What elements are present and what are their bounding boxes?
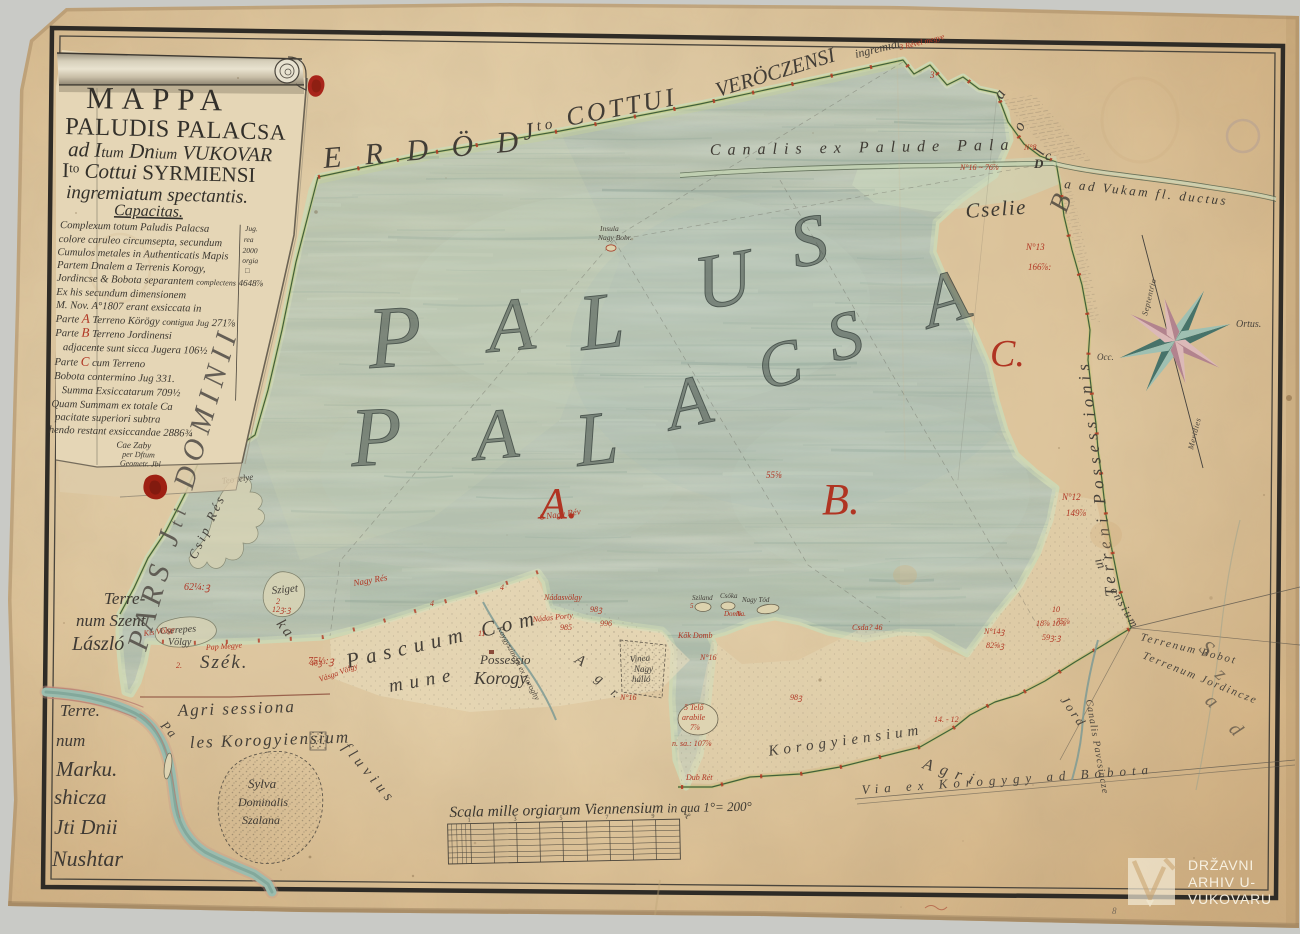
svg-text:82⅝ꝫ: 82⅝ꝫ	[986, 641, 1005, 650]
svg-text:Jug.: Jug.	[245, 224, 258, 233]
svg-text:DRŽAVNI: DRŽAVNI	[1188, 857, 1254, 873]
svg-text:Possessio: Possessio	[479, 652, 531, 667]
svg-text:Na.: Na.	[735, 610, 746, 618]
svg-text:Sylva: Sylva	[248, 776, 277, 791]
svg-text:Marku.: Marku.	[55, 757, 117, 781]
svg-text:4: 4	[430, 599, 434, 608]
svg-text:8: 8	[1112, 906, 1117, 916]
svg-text:Cselie: Cselie	[965, 195, 1028, 223]
svg-text:hálló: hálló	[632, 674, 651, 684]
svg-text:rea: rea	[244, 235, 254, 244]
svg-text:Korogy.: Korogy.	[473, 668, 531, 688]
svg-text:2000: 2000	[242, 246, 257, 255]
svg-text:Insula: Insula	[599, 224, 619, 233]
svg-text:Geometr. Jbl: Geometr. Jbl	[120, 459, 162, 469]
svg-text:C.: C.	[990, 333, 1025, 375]
svg-text:Csóka: Csóka	[720, 592, 738, 600]
svg-text:□: □	[245, 266, 250, 275]
svg-text:Szalana: Szalana	[242, 813, 280, 827]
svg-text:num: num	[56, 731, 85, 750]
svg-text:46ꝫ: 46ꝫ	[310, 658, 324, 668]
svg-text:Ortus.: Ortus.	[1236, 319, 1261, 330]
svg-text:Sziland: Sziland	[692, 594, 713, 602]
svg-text:MAPPA: MAPPA	[86, 80, 231, 118]
svg-text:L: L	[570, 395, 622, 483]
svg-text:11: 11	[478, 629, 485, 638]
svg-text:N°16: N°16	[699, 653, 717, 662]
svg-text:Nagy Tód: Nagy Tód	[741, 596, 770, 604]
svg-text:László: László	[71, 633, 124, 655]
svg-text:55⅝: 55⅝	[766, 470, 782, 480]
svg-text:Nagy: Nagy	[633, 664, 653, 674]
svg-text:Dominalis: Dominalis	[237, 795, 288, 809]
svg-text:1: 1	[467, 818, 470, 824]
svg-text:12ꝫ:ꝫ: 12ꝫ:ꝫ	[272, 605, 292, 614]
svg-text:N°16 ~ 76⅞: N°16 ~ 76⅞	[959, 163, 999, 172]
svg-text:c: c	[1045, 149, 1052, 164]
svg-text:ꝛ°: ꝛ°	[683, 812, 691, 821]
svg-text:Nagy Bobr.: Nagy Bobr.	[597, 233, 632, 242]
svg-text:P: P	[364, 287, 425, 388]
svg-text:n. sa.: 107⅞: n. sa.: 107⅞	[672, 739, 712, 748]
svg-text:Capacitas.: Capacitas.	[114, 202, 183, 221]
svg-text:10: 10	[1052, 605, 1060, 614]
svg-text:N°16: N°16	[619, 693, 637, 702]
svg-text:14. - 12: 14. - 12	[934, 715, 959, 724]
svg-text:N°14ꝫ: N°14ꝫ	[983, 627, 1006, 636]
svg-text:Dub Rét: Dub Rét	[685, 773, 713, 782]
svg-text:Jti Dnii: Jti Dnii	[54, 815, 118, 839]
svg-text:75⅞: 75⅞	[1056, 617, 1070, 626]
svg-text:N°8: N°8	[1023, 143, 1037, 152]
svg-text:5 Telő: 5 Telő	[684, 703, 704, 712]
svg-text:7: 7	[605, 815, 608, 821]
svg-text:4: 4	[500, 583, 504, 592]
svg-text:ARHIV U-: ARHIV U-	[1188, 874, 1256, 890]
svg-text:arabile: arabile	[682, 713, 706, 722]
svg-text:98ꝫ: 98ꝫ	[790, 693, 803, 702]
svg-text:Vinea: Vinea	[629, 653, 650, 664]
svg-text:Nádasvölgy: Nádasvölgy	[543, 593, 582, 602]
svg-text:5: 5	[690, 602, 694, 610]
svg-text:shicza: shicza	[54, 785, 107, 809]
svg-text:59ꝫ:ꝫ: 59ꝫ:ꝫ	[1042, 633, 1062, 642]
svg-text:166⅞:: 166⅞:	[1028, 262, 1051, 272]
svg-text:P: P	[347, 389, 404, 485]
svg-text:2.: 2.	[176, 661, 182, 670]
svg-text:3: 3	[929, 70, 935, 80]
svg-text:996: 996	[600, 619, 612, 628]
svg-text:7⅞: 7⅞	[690, 723, 700, 732]
svg-text:Völgy: Völgy	[168, 637, 192, 648]
svg-text:N°13: N°13	[1025, 242, 1045, 252]
svg-text:VUKOVARU: VUKOVARU	[1188, 891, 1272, 907]
svg-text:5: 5	[559, 816, 562, 822]
svg-text:Terre.: Terre.	[60, 701, 100, 720]
svg-text:3: 3	[513, 817, 516, 823]
svg-text:985: 985	[560, 623, 572, 632]
svg-text:B.: B.	[822, 475, 860, 524]
svg-text:orgia: orgia	[242, 256, 258, 265]
svg-text:Kők Domb: Kők Domb	[677, 631, 712, 640]
svg-text:N°12: N°12	[1061, 492, 1081, 502]
svg-text:L: L	[574, 276, 628, 368]
svg-text:149⅞: 149⅞	[1066, 508, 1087, 518]
svg-text:Occ.: Occ.	[1097, 352, 1114, 362]
svg-text:62¼:ꝫ: 62¼:ꝫ	[184, 582, 211, 593]
svg-text:9: 9	[651, 814, 654, 820]
svg-text:Csda? 46: Csda? 46	[852, 623, 882, 632]
svg-text:98ꝫ: 98ꝫ	[590, 605, 603, 614]
svg-text:Nushtar: Nushtar	[51, 846, 123, 871]
svg-text:Szék.: Szék.	[200, 652, 249, 673]
svg-text:D: D	[1033, 156, 1044, 171]
